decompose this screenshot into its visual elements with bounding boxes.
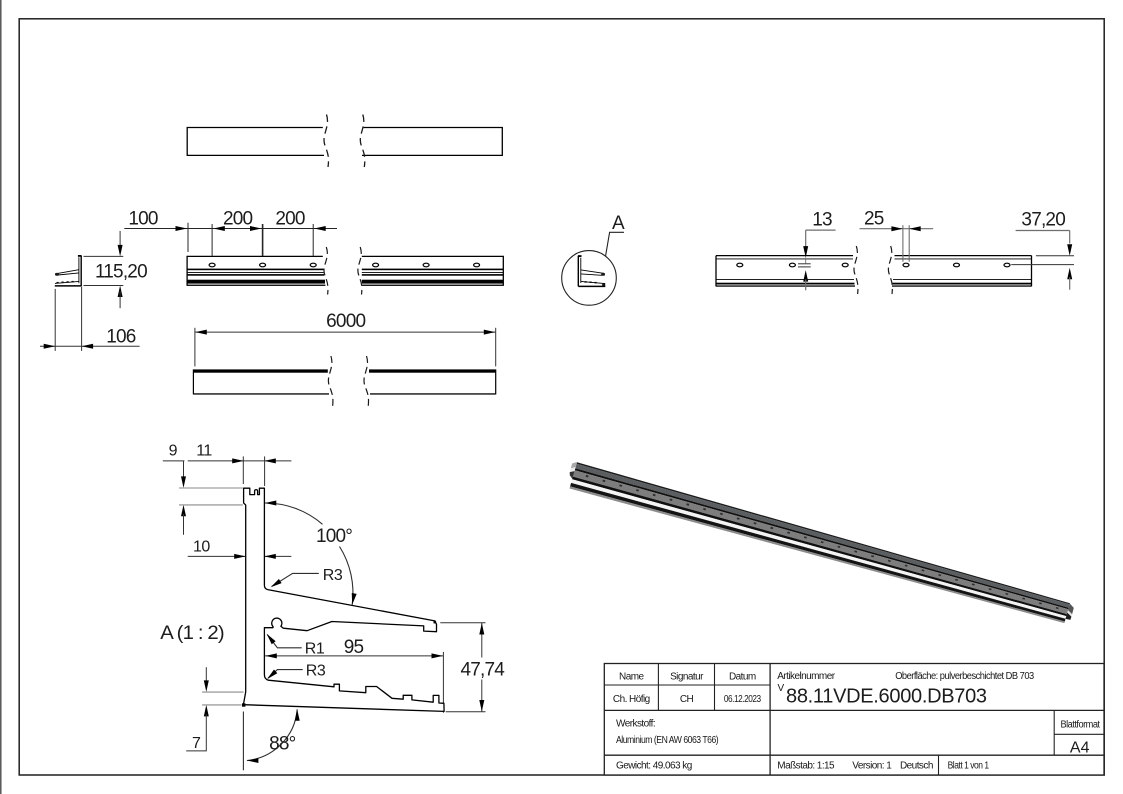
svg-text:A (1 : 2): A (1 : 2) [160, 623, 224, 644]
svg-text:37,20: 37,20 [1021, 210, 1065, 231]
svg-text:11: 11 [196, 443, 212, 460]
svg-text:7: 7 [192, 735, 201, 752]
svg-text:88°: 88° [269, 734, 296, 755]
svg-text:V: V [778, 683, 785, 694]
svg-text:Blattformat: Blattformat [1061, 719, 1101, 730]
svg-text:100°: 100° [316, 526, 352, 547]
svg-text:Ch. Höfig: Ch. Höfig [613, 694, 650, 705]
svg-text:13: 13 [812, 209, 832, 230]
svg-text:CH: CH [680, 694, 694, 705]
svg-text:Werkstoff:: Werkstoff: [616, 718, 655, 729]
svg-text:Datum: Datum [729, 672, 756, 683]
svg-text:Maßstab: 1:15: Maßstab: 1:15 [777, 760, 835, 771]
svg-text:Blatt 1 von 1: Blatt 1 von 1 [948, 760, 990, 771]
svg-text:A4: A4 [1070, 740, 1090, 757]
svg-text:R3: R3 [306, 663, 326, 680]
svg-text:A: A [612, 213, 625, 234]
svg-text:Deutsch: Deutsch [900, 760, 933, 771]
svg-text:47,74: 47,74 [461, 659, 506, 680]
svg-text:06.12.2023: 06.12.2023 [724, 694, 762, 705]
svg-text:100: 100 [128, 209, 158, 230]
svg-text:95: 95 [344, 637, 364, 658]
svg-text:9: 9 [169, 443, 178, 460]
svg-text:106: 106 [106, 327, 136, 348]
svg-text:Name: Name [619, 672, 644, 683]
svg-text:Aluminium (EN AW 6063 T66): Aluminium (EN AW 6063 T66) [616, 735, 718, 746]
svg-text:Signatur: Signatur [670, 672, 704, 683]
svg-text:25: 25 [864, 209, 884, 230]
svg-text:88.11VDE.6000.DB703: 88.11VDE.6000.DB703 [786, 686, 987, 708]
svg-text:200: 200 [275, 209, 305, 230]
svg-text:R1: R1 [305, 641, 325, 658]
svg-text:10: 10 [193, 538, 210, 555]
svg-text:R3: R3 [323, 567, 343, 584]
svg-text:Oberfläche: pulverbeschichtet: Oberfläche: pulverbeschichtet DB 703 [895, 671, 1034, 682]
svg-text:Version: 1: Version: 1 [852, 760, 892, 771]
svg-text:115,20: 115,20 [95, 262, 147, 283]
svg-text:200: 200 [223, 209, 253, 230]
svg-text:Gewicht: 49.063 kg: Gewicht: 49.063 kg [616, 760, 692, 771]
svg-text:Artikelnummer: Artikelnummer [777, 671, 836, 682]
svg-text:6000: 6000 [326, 311, 365, 332]
